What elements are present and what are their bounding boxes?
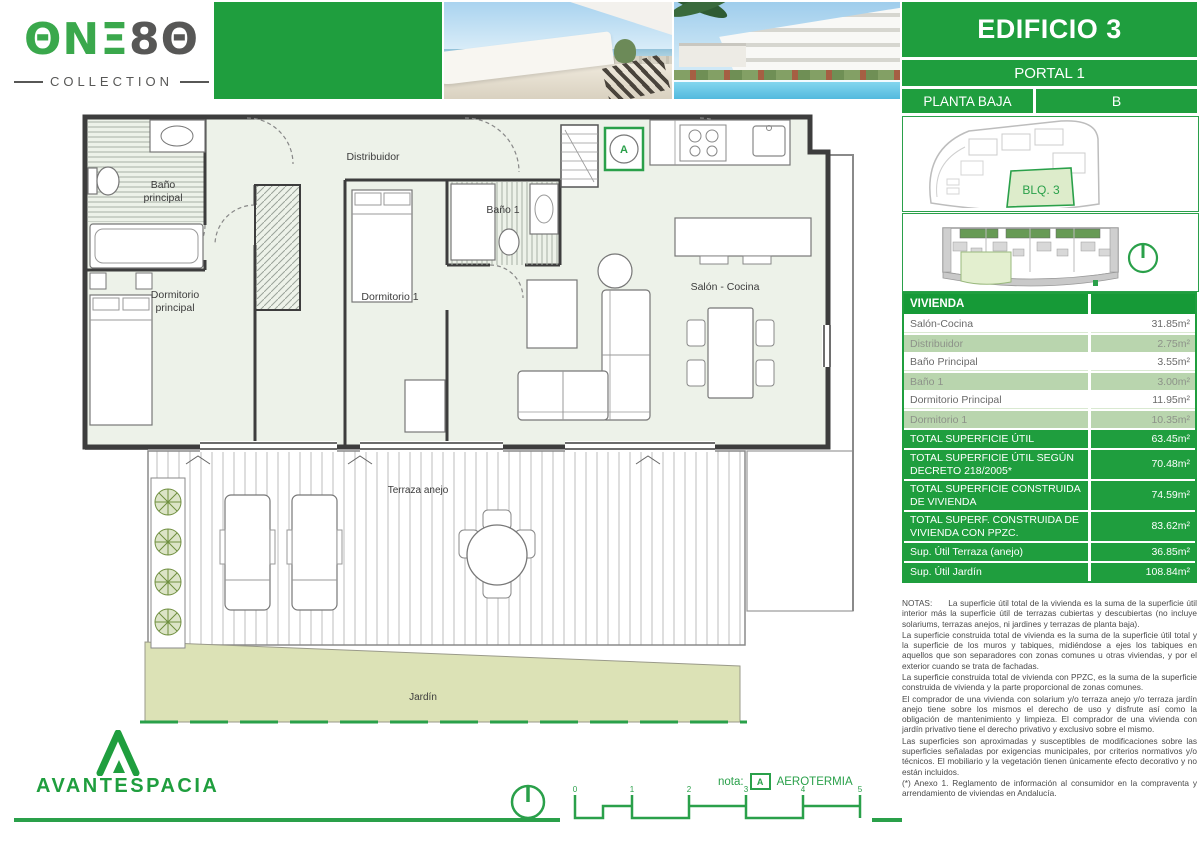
table-row: VIVIENDA — [904, 294, 1195, 314]
pouf — [598, 254, 632, 288]
notes-paragraph: La superficie construida total de vivien… — [902, 672, 1197, 693]
table-row-total: TOTAL SUPERFICIE ÚTIL63.45m² — [904, 430, 1195, 448]
notes-paragraph: La superficie construida total de vivien… — [902, 630, 1197, 671]
notes-title: NOTAS: — [902, 598, 932, 608]
scale-bar: 0 1 2 3 4 5 — [565, 778, 885, 830]
roof-garden — [1056, 229, 1100, 238]
marker-a-label: A — [620, 144, 628, 156]
scale-tick-label: 1 — [630, 785, 635, 794]
roof-garden — [960, 229, 998, 238]
legal-notes: NOTAS:La superficie útil total de la viv… — [902, 598, 1197, 799]
logo-one: ΘN — [24, 14, 100, 65]
label-bano1: Baño 1 — [486, 204, 519, 216]
label-salon-cocina: Salón - Cocina — [691, 281, 760, 293]
unit-letter: B — [1036, 89, 1197, 113]
one80-logo-wordmark: ΘNΞ8Θ — [14, 10, 209, 70]
logo-collection-row: COLLECTION — [14, 74, 209, 89]
surface-table: VIVIENDA Salón-Cocina31.85m² Distribuido… — [902, 292, 1197, 583]
scale-tick-label: 2 — [687, 785, 692, 794]
photo-plant — [614, 39, 636, 63]
sun-lounger — [287, 495, 342, 610]
label-dormitorio1: Dormitorio 1 — [361, 291, 418, 303]
label-distribuidor: Distribuidor — [346, 151, 400, 163]
dresser — [405, 380, 445, 432]
table-row: Distribuidor2.75m² — [904, 335, 1195, 352]
toilet — [88, 168, 97, 194]
toilet — [499, 229, 519, 255]
table-row-total: Sup. Útil Terraza (anejo)36.85m² — [904, 543, 1195, 561]
svg-text:principal: principal — [143, 192, 182, 204]
render-photo-pool — [674, 2, 900, 99]
compass-icon — [507, 781, 549, 823]
window — [822, 325, 833, 367]
table-row: Salón-Cocina31.85m² — [904, 316, 1195, 333]
photo-low-building — [679, 43, 747, 67]
stool — [743, 256, 771, 264]
label-jardin: Jardín — [409, 692, 437, 703]
building-title: EDIFICIO 3 — [902, 2, 1197, 57]
tv-console — [527, 280, 577, 348]
table-title: VIVIENDA — [904, 294, 1088, 314]
photo-pool — [674, 80, 900, 99]
table-row: Dormitorio 110.35m² — [904, 411, 1195, 428]
unit-highlight — [961, 252, 1011, 284]
brochure-sheet: ΘNΞ8Θ COLLECTION EDIFICIO 3 PORTAL 1 PLA… — [0, 0, 1199, 846]
table-row: Dormitorio Principal11.95m² — [904, 392, 1195, 409]
notes-paragraph: NOTAS:La superficie útil total de la viv… — [902, 598, 1197, 629]
garden-area — [145, 642, 740, 722]
scale-tick-label: 5 — [858, 785, 863, 794]
compass-icon — [1129, 244, 1157, 272]
building-level-strip — [902, 213, 1199, 292]
logo-collection-label: COLLECTION — [50, 74, 173, 89]
label-dormitorio-principal: Dormitorio — [151, 289, 200, 301]
nightstand — [90, 273, 106, 289]
footer-rule — [14, 818, 560, 822]
table-row: Baño 13.00m² — [904, 373, 1195, 390]
table-row-total: Sup. Útil Jardín108.84m² — [904, 563, 1195, 581]
table-row-total: TOTAL SUPERF. CONSTRUIDA DE VIVIENDA CON… — [904, 512, 1195, 541]
portal-label: PORTAL 1 — [902, 60, 1197, 86]
label-terraza: Terraza anejo — [388, 485, 449, 496]
chair — [687, 360, 705, 386]
shower — [451, 184, 495, 260]
dining-table — [708, 308, 753, 398]
notes-paragraph: Las superficies son aproximadas y suscep… — [902, 736, 1197, 777]
table-row: Baño Principal3.55m² — [904, 354, 1195, 371]
blq3-label: BLQ. 3 — [1022, 183, 1060, 197]
table-row-total: TOTAL SUPERFICIE ÚTIL SEGÚN DECRETO 218/… — [904, 450, 1195, 479]
logo-e: Ξ — [100, 14, 129, 65]
scale-tick-label: 3 — [744, 785, 749, 794]
avantespacia-wordmark: AVANTESPACIA — [36, 775, 216, 798]
sun-lounger — [220, 495, 275, 610]
avantespacia-logo-mark — [94, 730, 142, 776]
bed-principal — [90, 295, 152, 425]
kitchen-island — [675, 218, 811, 256]
chair — [687, 320, 705, 346]
svg-text:principal: principal — [155, 302, 194, 314]
wardrobe — [255, 185, 300, 310]
bathtub — [90, 224, 203, 268]
sink — [530, 184, 558, 234]
table-row-total: TOTAL SUPERFICIE CONSTRUIDA DE VIVIENDA7… — [904, 481, 1195, 510]
notes-paragraph: (*) Anexo 1. Reglamento de información a… — [902, 778, 1197, 799]
one80-logo: ΘNΞ8Θ COLLECTION — [14, 10, 209, 106]
label-bano-principal: Baño — [151, 179, 176, 191]
scale-tick-label: 0 — [573, 785, 578, 794]
bed-dormitorio1 — [352, 190, 412, 302]
chair — [756, 320, 774, 346]
roof-garden — [1006, 229, 1050, 238]
sink — [150, 120, 205, 152]
site-plan-drawing: BLQ. 3 — [903, 117, 1195, 208]
render-photo-terrace — [444, 2, 672, 99]
logo-dash-left — [14, 81, 43, 83]
building-strip-drawing — [903, 214, 1195, 288]
floor-plan-drawing: A — [75, 110, 865, 735]
logo-80: 8Θ — [129, 14, 199, 65]
site-plan-map: BLQ. 3 — [902, 116, 1199, 212]
floor-label: PLANTA BAJA — [902, 89, 1033, 113]
scale-tick-label: 4 — [801, 785, 806, 794]
nightstand — [136, 273, 152, 289]
logo-dash-right — [180, 81, 209, 83]
header-green-block — [214, 2, 442, 99]
chair — [756, 360, 774, 386]
stool — [700, 256, 728, 264]
notes-paragraph: El comprador de una vivienda con solariu… — [902, 694, 1197, 735]
